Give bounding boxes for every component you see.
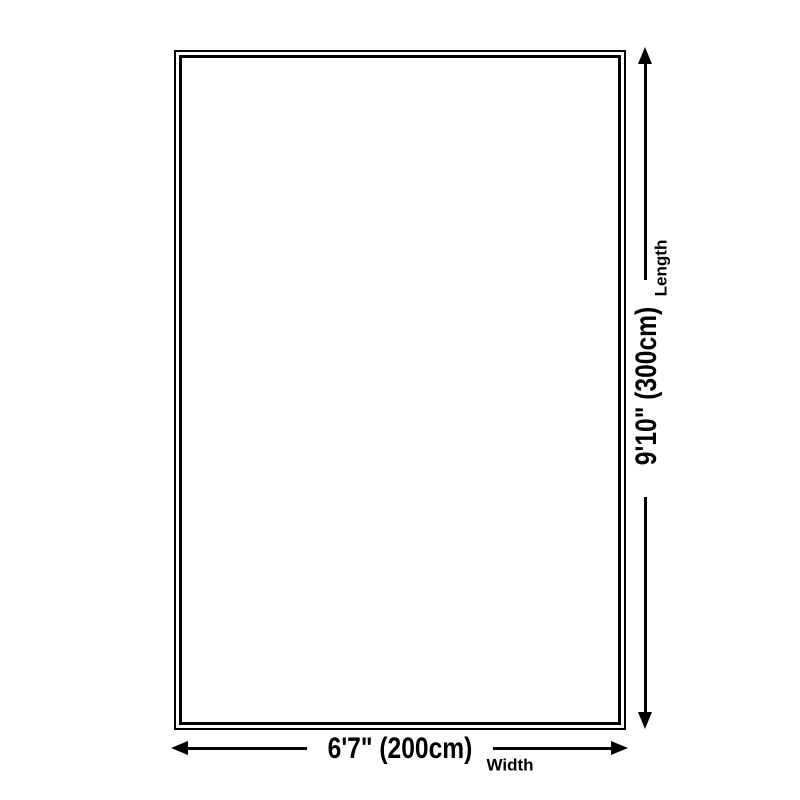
length-line-bottom xyxy=(644,497,647,713)
width-label: Width xyxy=(486,757,533,774)
length-label: Length xyxy=(653,240,670,297)
length-line-top xyxy=(644,64,647,280)
rug-dimension-diagram: 6'7" (200cm) Width Length 9'10" (300cm) xyxy=(0,0,800,800)
width-value: 6'7" (200cm) xyxy=(328,734,473,764)
width-line-right xyxy=(493,747,612,750)
arrow-down-icon xyxy=(638,712,652,729)
width-line-left xyxy=(186,747,307,750)
length-value: 9'10" (300cm) xyxy=(632,307,662,465)
arrow-up-icon xyxy=(638,47,652,64)
arrow-right-icon xyxy=(611,741,628,755)
rug-outline xyxy=(174,50,626,730)
rug-outline-inner xyxy=(179,55,621,725)
